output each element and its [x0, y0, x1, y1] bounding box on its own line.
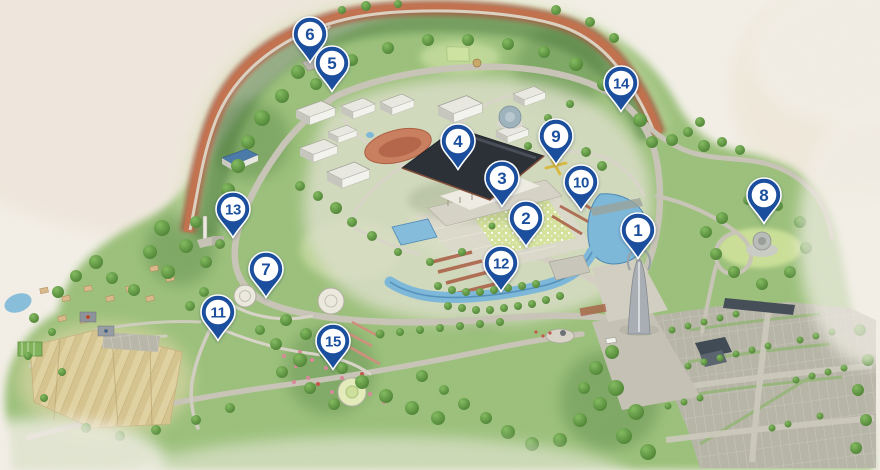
paper-grain [0, 0, 880, 470]
map-pin-icon: 9 [534, 116, 578, 168]
marker-number: 5 [327, 54, 336, 73]
map-pin-icon: 13 [211, 189, 255, 241]
map-pin-icon: 14 [599, 63, 643, 115]
marker-number: 7 [261, 260, 270, 279]
marker-number: 3 [497, 169, 506, 188]
marker-number: 4 [453, 132, 463, 151]
marker-number: 2 [521, 209, 530, 228]
map-pin-icon: 11 [196, 292, 240, 344]
map-marker-13[interactable]: 13 [211, 189, 255, 241]
marker-number: 8 [759, 186, 768, 205]
marker-number: 10 [573, 174, 589, 191]
map-pin-icon: 5 [310, 43, 354, 95]
map-marker-11[interactable]: 11 [196, 292, 240, 344]
map-pin-icon: 1 [616, 210, 660, 262]
marker-number: 11 [210, 304, 225, 321]
map-pin-icon: 4 [436, 121, 480, 173]
map-marker-7[interactable]: 7 [244, 249, 288, 301]
map-pin-icon: 7 [244, 249, 288, 301]
map-pin-icon: 8 [742, 175, 786, 227]
map-illustration [0, 0, 880, 470]
map-marker-1[interactable]: 1 [616, 210, 660, 262]
map-pin-icon: 10 [559, 162, 603, 214]
marker-number: 1 [633, 221, 642, 240]
marker-number: 13 [225, 201, 241, 218]
map-marker-4[interactable]: 4 [436, 121, 480, 173]
map-marker-5[interactable]: 5 [310, 43, 354, 95]
marker-number: 14 [613, 75, 630, 92]
map-pin-icon: 15 [311, 321, 355, 373]
marker-number: 6 [305, 25, 314, 44]
map-marker-15[interactable]: 15 [311, 321, 355, 373]
map-pin-icon: 12 [479, 243, 523, 295]
map-marker-8[interactable]: 8 [742, 175, 786, 227]
marker-number: 12 [493, 255, 509, 272]
map-marker-10[interactable]: 10 [559, 162, 603, 214]
map-marker-12[interactable]: 12 [479, 243, 523, 295]
marker-number: 9 [551, 127, 560, 146]
map-marker-9[interactable]: 9 [534, 116, 578, 168]
map-marker-14[interactable]: 14 [599, 63, 643, 115]
marker-number: 15 [325, 333, 341, 350]
illustrated-map-page: 651494310813211271115 [0, 0, 880, 470]
